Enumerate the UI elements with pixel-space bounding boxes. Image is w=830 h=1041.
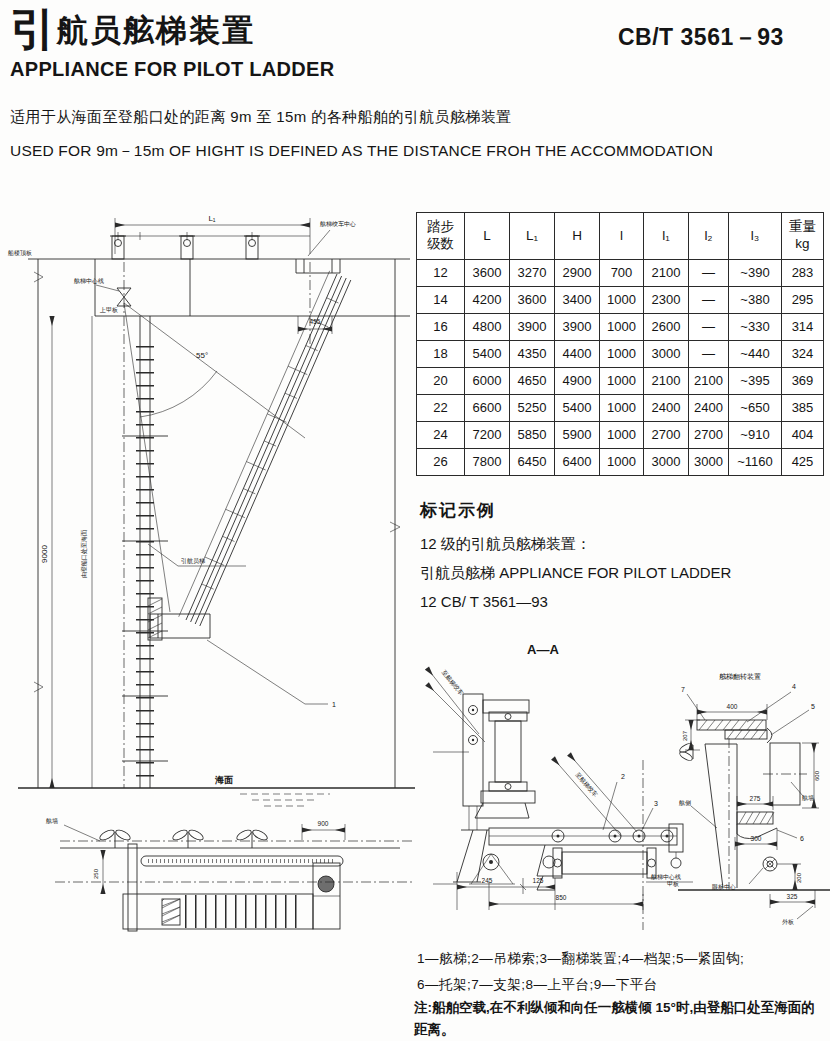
bulwark-label: 舷墙 xyxy=(801,794,814,802)
table-row: 26780064506400100030003000~1160425 xyxy=(417,449,824,476)
legend-line2: 6—托架;7—支架;8—上平台;9—下平台 xyxy=(417,972,744,998)
dim-850: 850 xyxy=(556,894,567,901)
page-title-rest: 航员舷梯装置 xyxy=(57,13,255,48)
section-title: A—A xyxy=(527,642,559,657)
marking-example: 标记示例 12 级的引航员舷梯装置： 引航员舷梯 APPLIANCE FOR P… xyxy=(420,496,731,616)
callout-7-leader xyxy=(687,694,705,720)
callout-4-leader xyxy=(747,692,791,722)
dim-325: 325 xyxy=(787,893,798,900)
cleat xyxy=(235,828,268,848)
dim-455: 455 xyxy=(310,318,321,325)
callout-1: 1 xyxy=(332,701,336,708)
deck-bitts xyxy=(110,236,260,259)
callout-7: 7 xyxy=(681,686,685,693)
table-row: 22660052505400100024002400~650385 xyxy=(417,395,824,422)
callout-6-leader xyxy=(777,830,797,838)
dim-125: 125 xyxy=(533,877,544,884)
sea-surface xyxy=(18,788,415,806)
standard-code: CB/T 3561－93 xyxy=(618,22,784,53)
dim-L1: L₁ xyxy=(208,214,215,223)
pilot-ladder-label: 引航员梯 xyxy=(181,557,205,565)
angle-55: 55° xyxy=(196,351,208,360)
boat-deck-label: 船楼顶板 xyxy=(7,250,32,257)
parts-legend: 1—舷梯;2—吊梯索;3—翻梯装置;4—档架;5—紧固钩; 6—托架;7—支架;… xyxy=(417,946,744,998)
marking-line2: 引航员舷梯 APPLIANCE FOR PILOT LADDER xyxy=(420,558,731,587)
upper-deck-label: 上甲板 xyxy=(99,307,118,313)
davit-centerline xyxy=(117,262,131,788)
page-title: 引航员舷梯装置 xyxy=(10,6,255,52)
table-row: 123600327029007002100—~390283 xyxy=(417,260,824,287)
dim-9000: 9000 xyxy=(40,545,49,563)
dim-245: 245 xyxy=(482,877,493,884)
page-title-first-char: 引 xyxy=(10,3,57,55)
dimension-table: 踏步级数 L L₁ H l l₁ l₂ l₃ 重量kg 123600327029… xyxy=(416,212,824,476)
height-dimension: 9000 由登船口处至海面 xyxy=(40,316,92,788)
dim-300: 300 xyxy=(751,835,762,842)
dim-900: 900 xyxy=(318,820,329,827)
dim-600: 600 xyxy=(814,770,820,781)
table-row: 1648003900390010002600—~330314 xyxy=(417,314,824,341)
cleat xyxy=(171,828,204,848)
eye-plate-label: 眼板中心 xyxy=(712,883,736,891)
table-row: 24720058505900100027002700~910404 xyxy=(417,422,824,449)
ladder-centerline-label: 舷梯中心线 xyxy=(650,873,681,881)
dim-275: 275 xyxy=(750,795,761,802)
sea-surface-label: 海面 xyxy=(214,775,233,785)
page-title-english: APPLIANCE FOR PILOT LADDER xyxy=(10,58,334,81)
ship-side-label: 舷侧 xyxy=(678,799,691,807)
standard-document-page: { "header": { "title_zh_big": "引", "titl… xyxy=(0,0,830,1041)
col-header-weight: 重量kg xyxy=(782,213,824,260)
callout-4: 4 xyxy=(792,683,796,690)
plan-view: 舷墙 900 250 xyxy=(45,817,414,931)
hull-and-decks xyxy=(28,259,410,788)
dim-250: 250 xyxy=(93,868,99,879)
col-header-H: H xyxy=(555,213,600,260)
table-row: 1854004350440010003000—~440324 xyxy=(417,341,824,368)
col-header-l2: l₂ xyxy=(689,213,729,260)
footnote-prefix: 注: xyxy=(414,1000,432,1015)
dim-207: 207 xyxy=(682,730,688,741)
hoist-cables xyxy=(124,303,305,612)
L1-dimension: L₁ xyxy=(115,214,310,254)
winch-leader xyxy=(308,230,330,256)
footnote-text: 船舶空载,在不利纵倾和向任一舷横倾 15°时,由登船口处至海面的距离。 xyxy=(414,1000,815,1037)
footnote: 注:船舶空载,在不利纵倾和向任一舷横倾 15°时,由登船口处至海面的距离。 xyxy=(414,997,824,1041)
table-row: 1442003600340010002300—~380295 xyxy=(417,287,824,314)
scope-text-zh: 适用于从海面至登船口处的距离 9m 至 15m 的各种船舶的引航员舷梯装置 xyxy=(10,108,512,127)
marking-line1: 12 级的引航员舷梯装置： xyxy=(420,529,731,558)
deck-label: 甲板 xyxy=(667,881,679,887)
callout-1-leader xyxy=(207,640,328,704)
centerline-leader xyxy=(96,285,119,291)
col-header-steps: 踏步级数 xyxy=(417,213,465,260)
marking-heading: 标记示例 xyxy=(420,496,731,525)
col-header-l3: l₃ xyxy=(729,213,782,260)
winch-center-label: 舷梯绞车中心 xyxy=(319,220,356,228)
table-header-row: 踏步级数 L L₁ H l l₁ l₂ l₃ 重量kg xyxy=(417,213,824,260)
centerline-label: 舷梯中心线 xyxy=(73,277,104,285)
callout-5: 5 xyxy=(811,703,815,710)
davit-roller-detail: 至舷梯绞车 至舷梯绞车 xyxy=(427,668,683,890)
col-header-l1: l₁ xyxy=(644,213,689,260)
right-detail-dimensions: 400 207 600 275 300 200 325 舷侧 舷墙 甲板 眼板中… xyxy=(667,703,820,925)
plan-bulwark-label: 舷墙 xyxy=(45,817,58,825)
scope-text-en: USED FOR 9m－15m OF HIGHT IS DEFINED AS T… xyxy=(10,141,713,162)
height-note-label: 由登船口处至海面 xyxy=(80,530,88,578)
section-aa-drawing: A—A 至舷梯绞车 xyxy=(425,632,830,940)
to-winch-label: 至舷梯绞车 xyxy=(440,669,465,697)
callout-2-leader xyxy=(603,782,617,830)
callout-6: 6 xyxy=(800,835,804,842)
dim-400: 400 xyxy=(727,703,738,710)
table-row: 20600046504900100021002100~395369 xyxy=(417,368,824,395)
shell-plate-label: 外板 xyxy=(782,918,794,925)
dim-200: 200 xyxy=(796,872,802,883)
col-header-l: l xyxy=(600,213,644,260)
detail-title: 舷梯翻转装置 xyxy=(719,673,761,681)
cleat xyxy=(98,828,131,848)
callout-2: 2 xyxy=(621,773,625,780)
marking-line3: 12 CB/ T 3561—93 xyxy=(420,587,731,616)
col-header-L: L xyxy=(465,213,510,260)
callout-5-leader xyxy=(771,710,809,735)
callout-3: 3 xyxy=(654,800,658,807)
col-header-L1: L₁ xyxy=(510,213,555,260)
main-technical-drawing: 船楼顶板 上甲板 9000 由登船口处至海面 L₁ 舷梯绞车中心 舷梯中心线 xyxy=(0,196,420,956)
legend-line1: 1—舷梯;2—吊梯索;3—翻梯装置;4—档架;5—紧固钩; xyxy=(417,946,744,972)
